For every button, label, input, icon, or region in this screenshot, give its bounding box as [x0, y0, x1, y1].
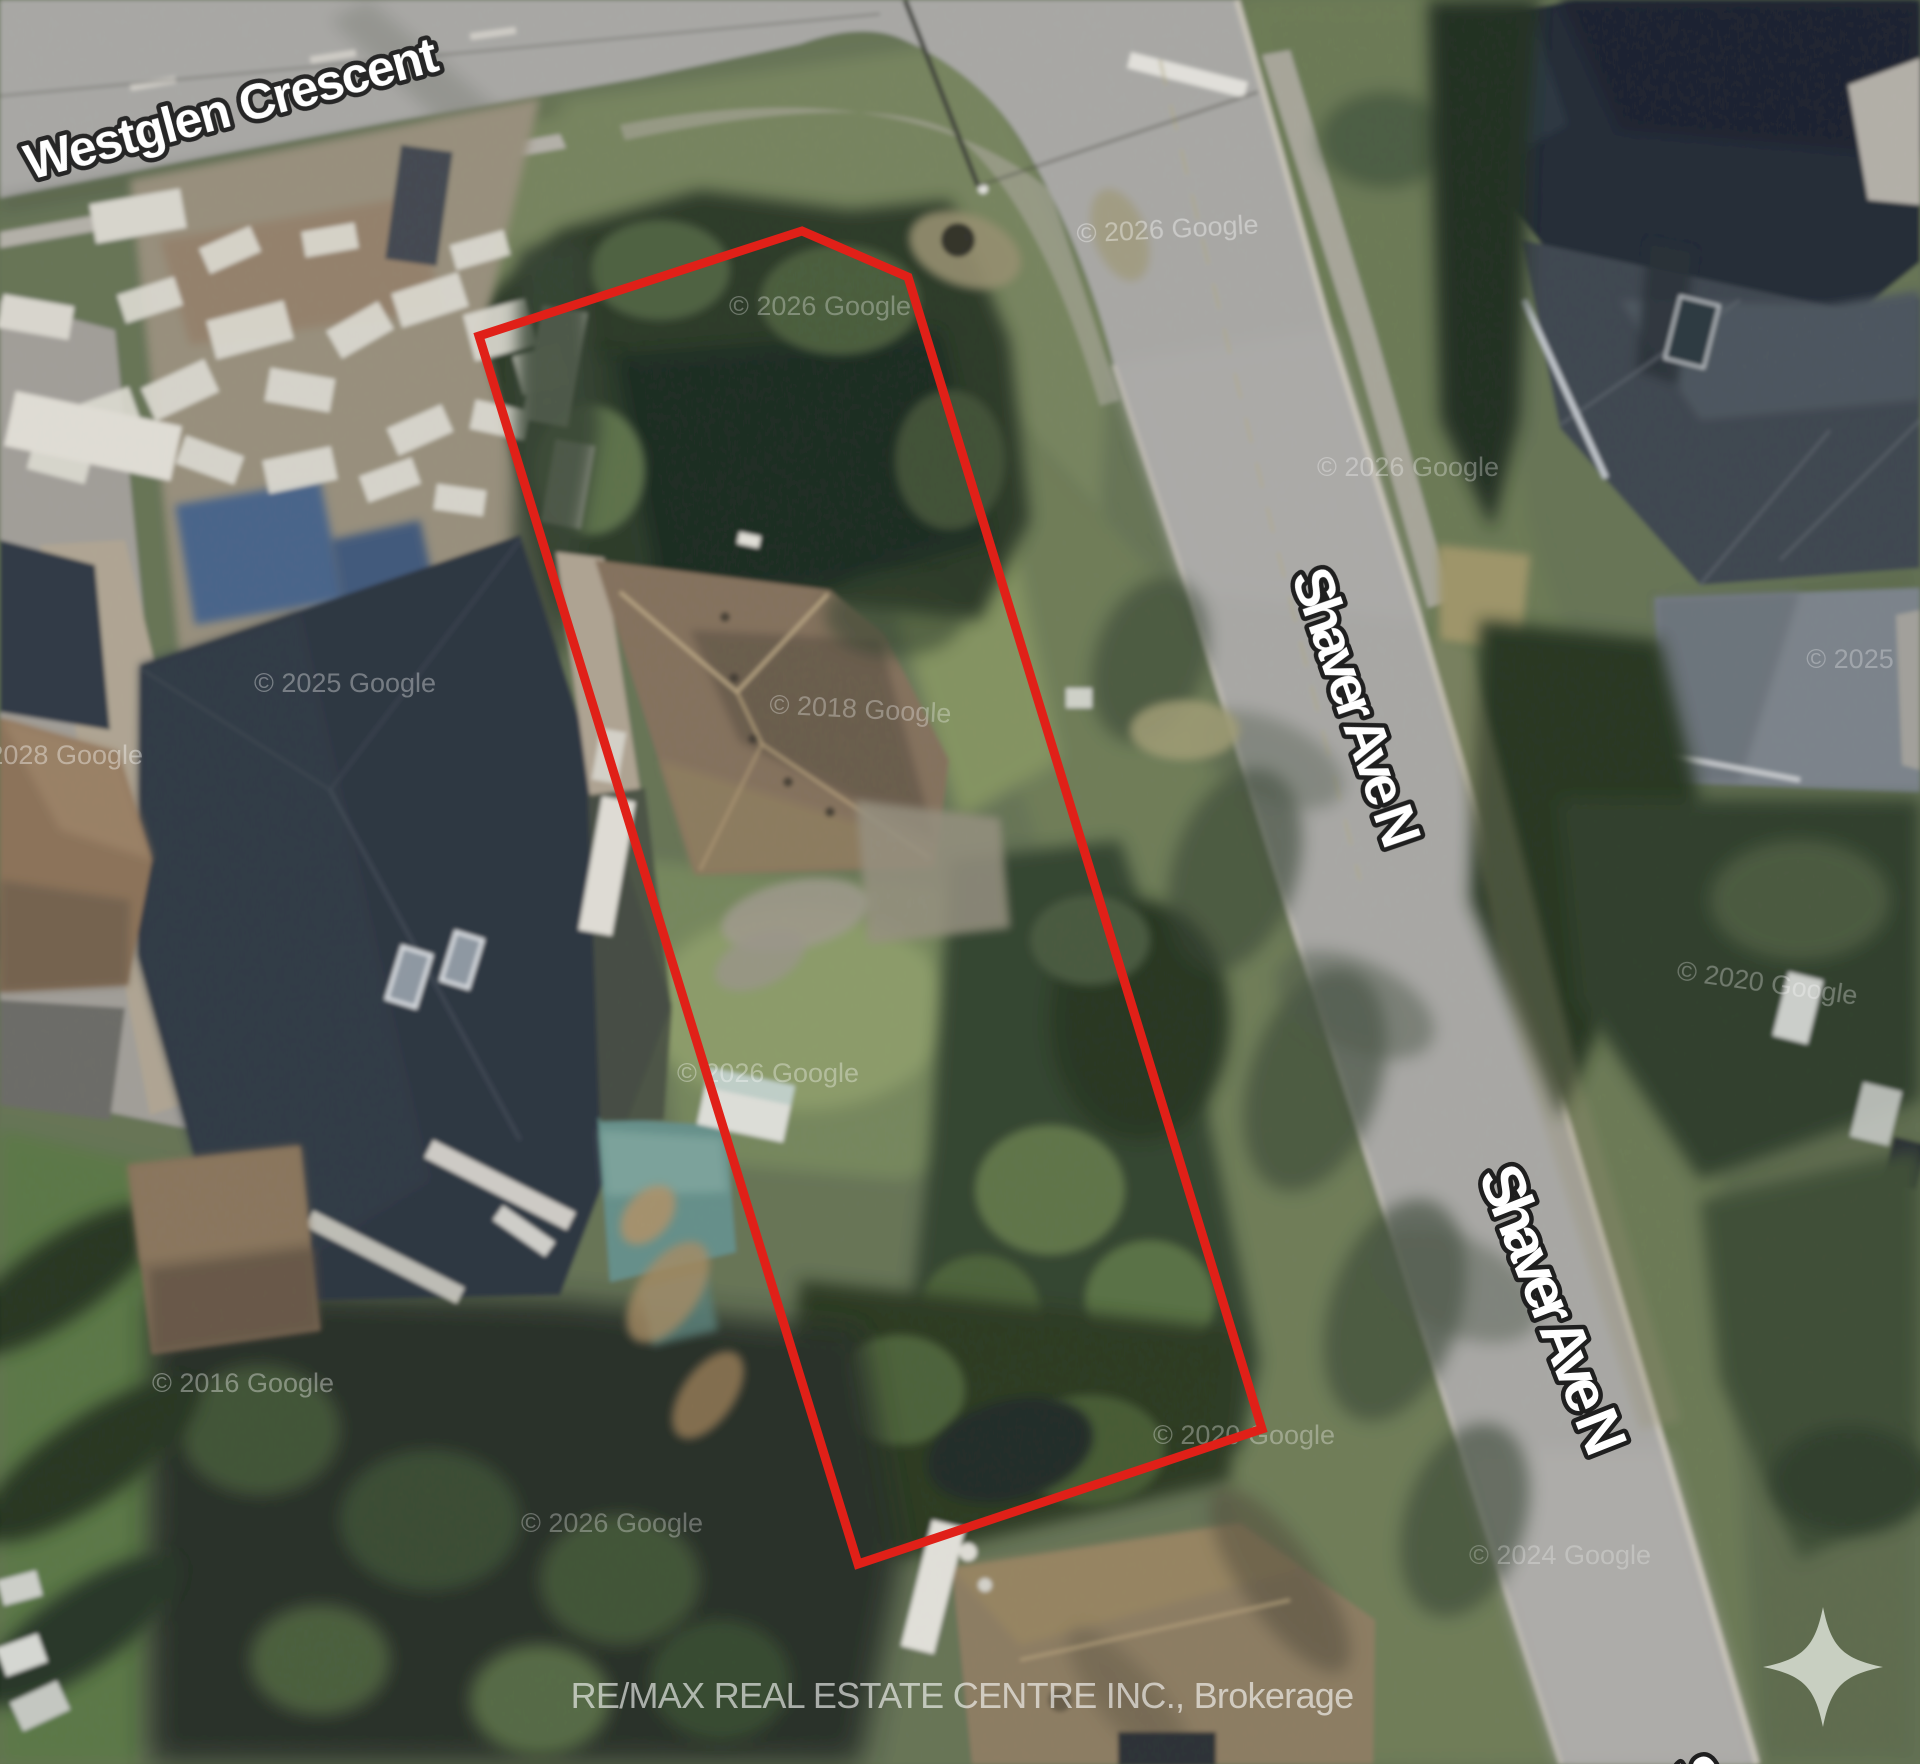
svg-text:© 2016 Google: © 2016 Google [152, 1368, 334, 1398]
svg-text:© 2024 Google: © 2024 Google [1469, 1540, 1651, 1570]
svg-text:© 2025: © 2025 [1806, 644, 1893, 674]
svg-text:© 2028 Google: © 2028 Google [0, 740, 143, 770]
svg-text:© 2026 Google: © 2026 Google [1317, 452, 1499, 482]
svg-text:© 2026 Google: © 2026 Google [729, 291, 911, 321]
svg-text:RE/MAX REAL ESTATE CENTRE INC.: RE/MAX REAL ESTATE CENTRE INC., Brokerag… [571, 1675, 1354, 1716]
svg-text:© 2025 Google: © 2025 Google [254, 668, 436, 698]
svg-text:© 2026 Google: © 2026 Google [521, 1508, 703, 1538]
